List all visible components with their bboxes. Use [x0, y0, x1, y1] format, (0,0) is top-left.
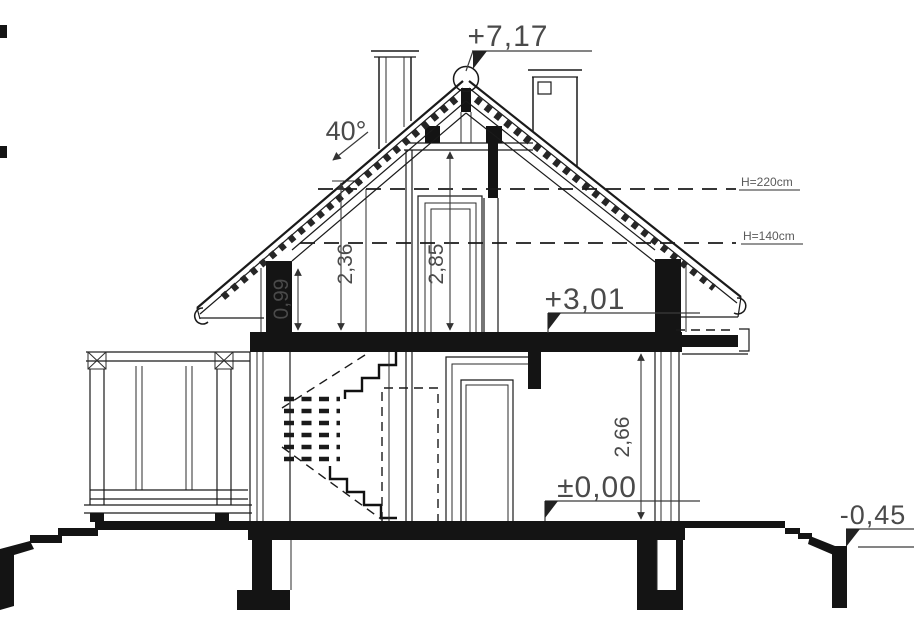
attic-floor-level-label: +3,01 [545, 283, 626, 316]
dim-2-36-label: 2,36 [334, 244, 357, 285]
foundations [237, 540, 683, 610]
labels: +7,17 40° H=220cm H=140cm 0,99 2,36 2,85… [270, 20, 906, 530]
door-lintel [528, 348, 541, 389]
h220-label: H=220cm [741, 175, 793, 189]
dim-2-85-label: 2,85 [425, 244, 448, 285]
stairs-lower-flight [330, 466, 397, 518]
ground-floor-level-label: ±0,00 [557, 471, 637, 504]
ground-door-frame [446, 348, 541, 521]
vent-stack-left [371, 51, 419, 149]
stairs-upper-flight [345, 352, 396, 399]
edge-marks [0, 25, 7, 158]
h140-label: H=140cm [743, 229, 795, 243]
retaining-wall [832, 546, 847, 608]
house-cross-section: +7,17 40° H=220cm H=140cm 0,99 2,36 2,85… [0, 0, 914, 628]
ground-slab [248, 521, 685, 540]
drawing-canvas: +7,17 40° H=220cm H=140cm 0,99 2,36 2,85… [0, 0, 914, 628]
ground-slab-right [685, 521, 785, 528]
roof-angle-label: 40° [326, 116, 367, 146]
ridge-level-label: +7,17 [468, 20, 549, 53]
staircase [282, 352, 438, 521]
dim-2-66-label: 2,66 [611, 417, 634, 458]
headroom-lines [300, 189, 803, 244]
terrace [84, 352, 252, 522]
attic-floor-slab [250, 332, 682, 352]
site-level-label: -0,45 [840, 500, 907, 530]
gutter-left [195, 308, 208, 324]
dim-0-99-label: 0,99 [270, 279, 293, 320]
canopy-slab [682, 335, 738, 347]
chimney-right [528, 70, 582, 166]
hidden-opening [382, 388, 438, 521]
